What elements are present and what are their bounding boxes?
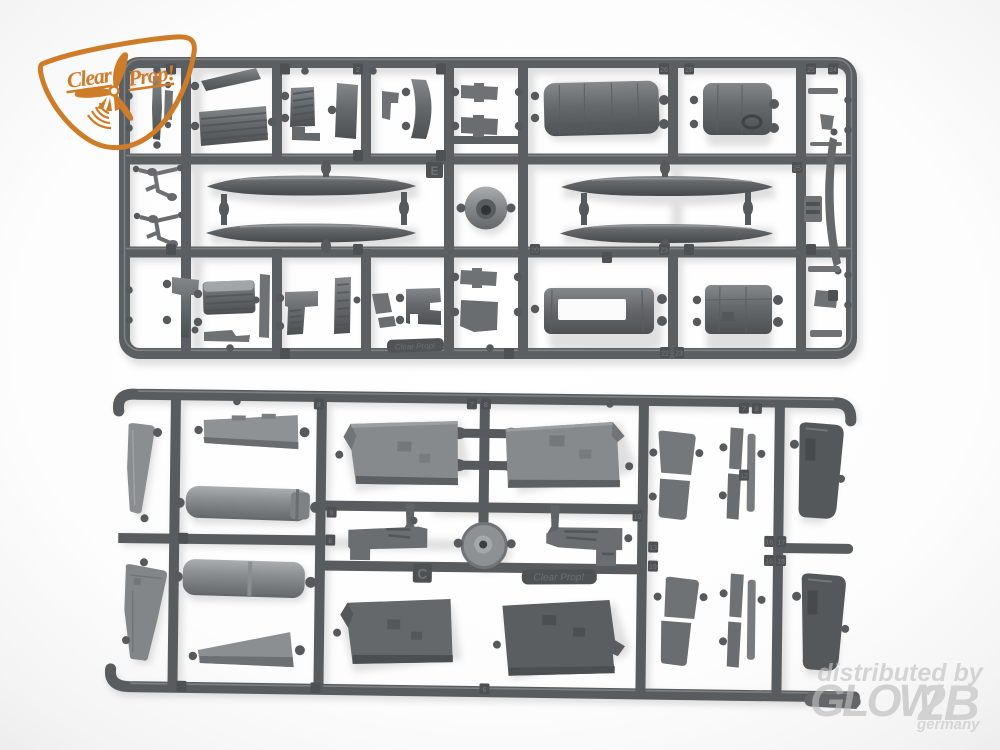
svg-text:7: 7 — [742, 406, 746, 413]
svg-text:C: C — [417, 566, 427, 582]
svg-text:19: 19 — [649, 564, 657, 571]
svg-text:13: 13 — [649, 545, 657, 552]
svg-text:26: 26 — [685, 67, 693, 74]
svg-text:Clear Prop!: Clear Prop! — [533, 572, 584, 583]
svg-text:10: 10 — [634, 514, 642, 521]
svg-text:20: 20 — [531, 248, 539, 255]
svg-text:18: 18 — [777, 559, 785, 566]
svg-text:6: 6 — [482, 687, 486, 694]
svg-text:2: 2 — [356, 67, 360, 74]
svg-text:23: 23 — [675, 351, 683, 358]
svg-text:25: 25 — [807, 67, 815, 74]
svg-text:7: 7 — [470, 402, 474, 409]
svg-text:22: 22 — [661, 351, 669, 358]
svg-text:26: 26 — [660, 67, 668, 74]
svg-text:25: 25 — [793, 166, 801, 173]
svg-text:9: 9 — [330, 510, 334, 517]
svg-text:17: 17 — [777, 540, 785, 547]
svg-text:16: 16 — [765, 558, 773, 565]
svg-text:germany: germany — [916, 716, 980, 733]
svg-text:6: 6 — [328, 538, 332, 545]
svg-text:Clear Prop!: Clear Prop! — [395, 341, 437, 351]
svg-text:12: 12 — [740, 473, 748, 480]
svg-text:8: 8 — [317, 402, 321, 409]
svg-text:8: 8 — [755, 406, 759, 413]
svg-text:8: 8 — [484, 402, 488, 409]
svg-text:E: E — [430, 164, 438, 178]
svg-text:23: 23 — [660, 248, 668, 255]
svg-text:24: 24 — [829, 67, 837, 74]
svg-text:16: 16 — [765, 539, 773, 546]
